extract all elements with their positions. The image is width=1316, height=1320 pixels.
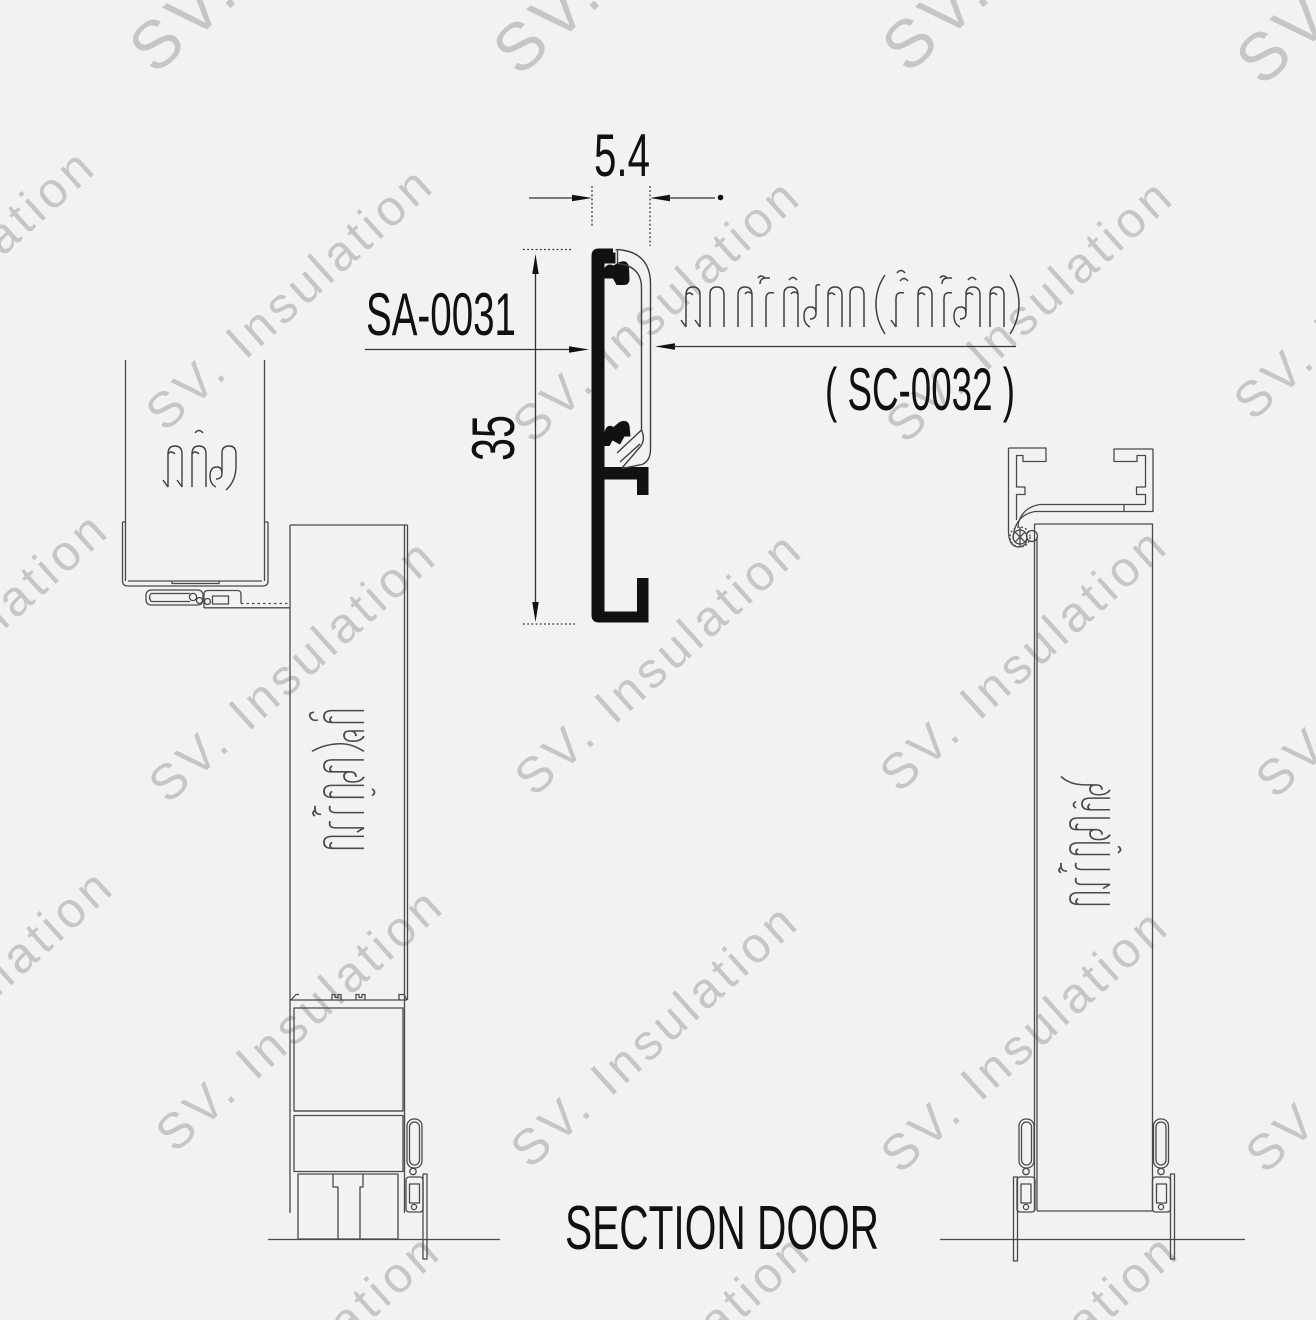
- svg-text:35: 35: [460, 415, 527, 461]
- svg-text:5.4: 5.4: [594, 122, 650, 189]
- svg-text:( SC-0032 ): ( SC-0032 ): [825, 356, 1015, 423]
- svg-text:SA-0031: SA-0031: [366, 281, 516, 348]
- svg-text:SECTION DOOR: SECTION DOOR: [565, 1194, 879, 1263]
